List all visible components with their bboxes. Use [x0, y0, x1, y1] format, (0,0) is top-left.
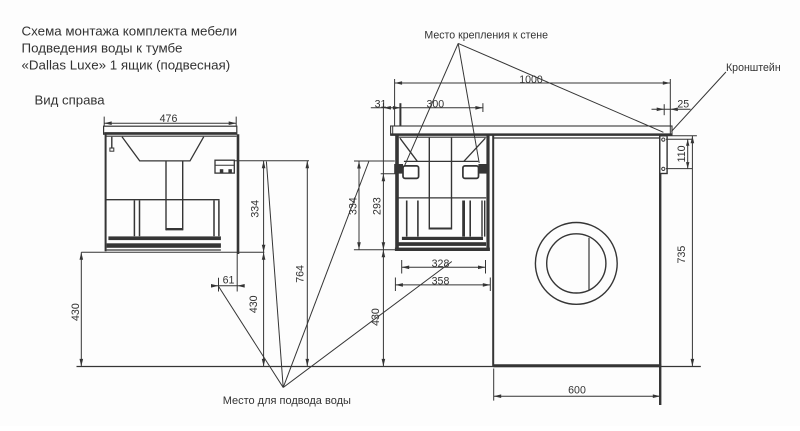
svg-text:293: 293	[371, 197, 383, 215]
svg-text:358: 358	[432, 276, 450, 288]
svg-text:31: 31	[375, 98, 387, 110]
svg-text:Вид справа: Вид справа	[35, 93, 106, 108]
svg-text:334: 334	[249, 200, 261, 218]
svg-text:110: 110	[676, 145, 688, 162]
svg-text:«Dallas Luxe» 1 ящик (подвесна: «Dallas Luxe» 1 ящик (подвесная)	[22, 58, 231, 73]
svg-text:430: 430	[248, 295, 260, 313]
svg-text:25: 25	[677, 98, 689, 110]
svg-text:Схема монтажа комплекта мебели: Схема монтажа комплекта мебели	[22, 24, 238, 39]
svg-text:430: 430	[70, 303, 82, 321]
svg-text:61: 61	[223, 275, 235, 287]
svg-text:Место для подвода воды: Место для подвода воды	[223, 395, 351, 407]
svg-text:Подведения воды к тумбе: Подведения воды к тумбе	[22, 41, 183, 56]
svg-text:1000: 1000	[519, 74, 543, 86]
svg-text:Место крепления к стене: Место крепления к стене	[424, 29, 548, 41]
svg-text:476: 476	[160, 113, 178, 125]
svg-text:Кронштейн: Кронштейн	[726, 62, 781, 74]
svg-text:430: 430	[370, 308, 382, 326]
svg-text:764: 764	[295, 265, 307, 283]
svg-text:328: 328	[432, 258, 450, 270]
svg-text:735: 735	[676, 246, 688, 264]
svg-text:600: 600	[568, 385, 586, 397]
